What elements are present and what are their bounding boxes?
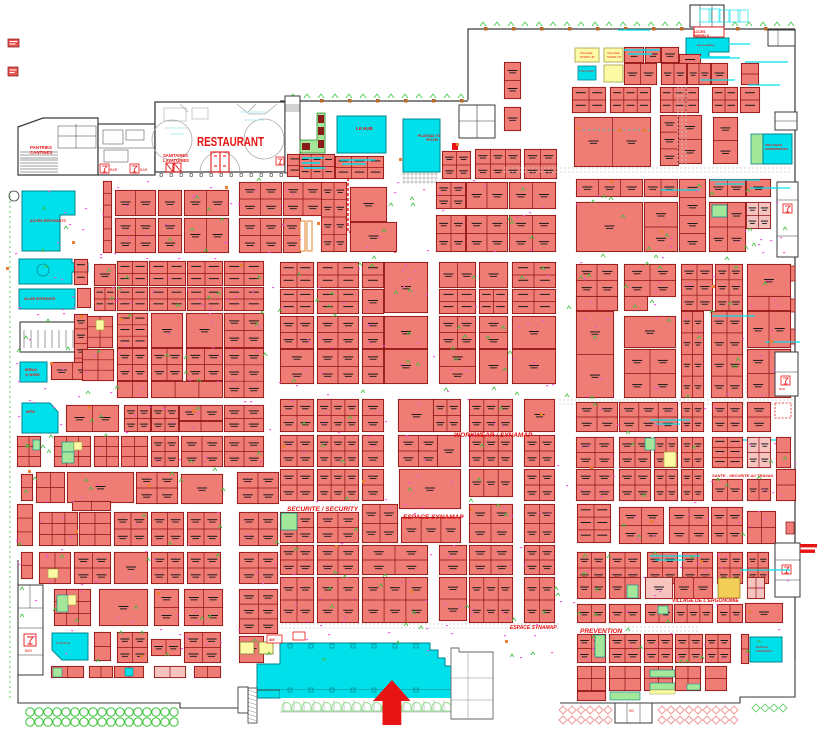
svg-text:ESPACE SYNAMAP: ESPACE SYNAMAP	[403, 514, 464, 521]
svg-text:ADHERENT: ADHERENT	[756, 649, 773, 653]
svg-text:WC: WC	[629, 709, 635, 713]
svg-text:WORKWEAR / SYNAMAP: WORKWEAR / SYNAMAP	[454, 432, 533, 439]
svg-text:ALLEE INTERANTE: ALLEE INTERANTE	[24, 297, 56, 301]
svg-text:PREVENTION: PREVENTION	[580, 628, 623, 635]
svg-text:BREAK: BREAK	[25, 368, 38, 372]
svg-text:VFLTM: VFLTM	[426, 138, 438, 142]
svg-text:VILLAGE DE L'ERGONOMIE: VILLAGE DE L'ERGONOMIE	[672, 598, 739, 604]
svg-text:BAR: BAR	[25, 649, 33, 653]
svg-text:LAVATORIES: LAVATORIES	[163, 158, 189, 163]
svg-text:CONFERENCES: CONFERENCES	[765, 147, 788, 151]
svg-text:BAR: BAR	[110, 168, 118, 172]
svg-text:START UP: START UP	[580, 55, 595, 59]
svg-text:CANTINES: CANTINES	[30, 150, 53, 155]
svg-text:ESPACE SYNAMAP: ESPACE SYNAMAP	[510, 625, 557, 631]
svg-text:TOP ACHAT: TOP ACHAT	[579, 69, 595, 73]
svg-text:BAR: BAR	[779, 387, 786, 391]
svg-text:ACCES EXPOSANTS: ACCES EXPOSANTS	[30, 219, 66, 223]
svg-text:SANTE - SECURITE AU TRAVAIL: SANTE - SECURITE AU TRAVAIL	[712, 473, 774, 478]
svg-text:BAR: BAR	[140, 168, 148, 172]
svg-text:LE HUB: LE HUB	[356, 126, 374, 131]
svg-text:@ WORK: @ WORK	[25, 373, 41, 377]
svg-text:ANI: ANI	[269, 638, 275, 642]
svg-text:SECURITE / SECURITY: SECURITE / SECURITY	[287, 506, 359, 513]
svg-text:LA BULLE: LA BULLE	[56, 641, 70, 645]
svg-text:RESTAURANT: RESTAURANT	[197, 134, 264, 149]
svg-text:APRS: APRS	[26, 410, 35, 414]
svg-text:PMR/BLS: PMR/BLS	[693, 34, 710, 38]
svg-text:START UP: START UP	[607, 55, 622, 59]
